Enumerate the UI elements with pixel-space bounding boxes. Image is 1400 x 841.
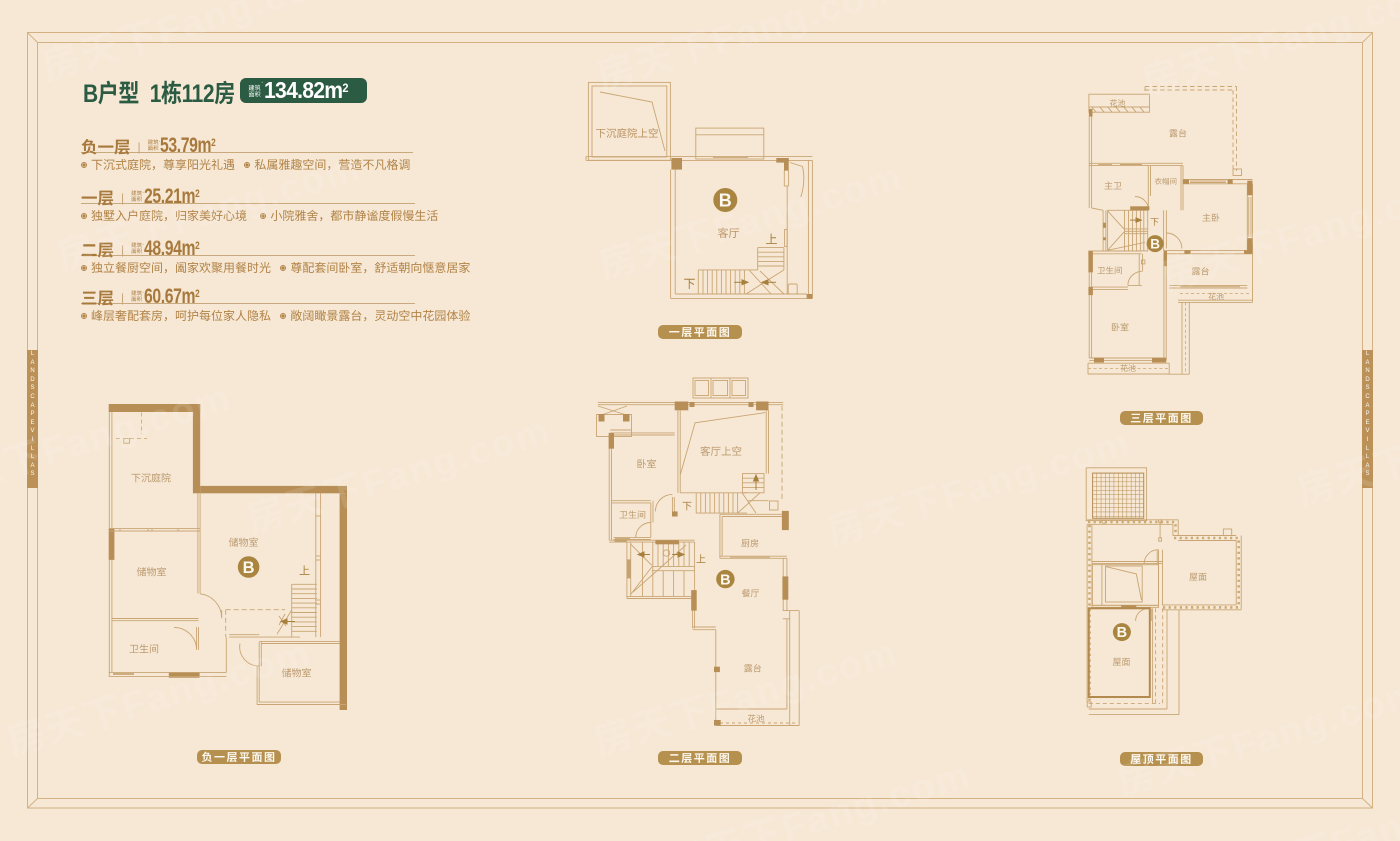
svg-text:上: 上: [696, 551, 706, 566]
svg-text:客厅上空: 客厅上空: [700, 444, 742, 459]
svg-text:厨房: 厨房: [741, 537, 759, 550]
svg-text:下沉庭院: 下沉庭院: [131, 470, 171, 485]
svg-text:衣帽间: 衣帽间: [1155, 176, 1178, 187]
svg-text:卫生间: 卫生间: [619, 508, 646, 521]
svg-text:卧室: 卧室: [1111, 321, 1129, 334]
svg-text:B: B: [243, 554, 255, 578]
svg-text:屋面: 屋面: [1189, 570, 1207, 583]
svg-text:卫生间: 卫生间: [1097, 265, 1123, 277]
svg-text:花池: 花池: [1110, 98, 1126, 109]
svg-text:卧室: 卧室: [637, 456, 657, 471]
svg-text:露台: 露台: [1169, 127, 1187, 140]
svg-text:花池: 花池: [1208, 292, 1224, 303]
svg-text:下: 下: [684, 275, 696, 292]
svg-text:下: 下: [1150, 215, 1159, 228]
svg-text:卫生间: 卫生间: [129, 641, 159, 656]
svg-text:储物室: 储物室: [137, 564, 167, 579]
svg-text:花池: 花池: [1120, 363, 1136, 374]
svg-text:B: B: [720, 568, 730, 589]
svg-text:下沉庭院上空: 下沉庭院上空: [596, 126, 659, 141]
svg-text:餐厅: 餐厅: [742, 587, 760, 600]
svg-text:屋面: 屋面: [1113, 655, 1131, 668]
svg-text:主卧: 主卧: [1202, 211, 1220, 224]
svg-text:主卫: 主卫: [1104, 179, 1122, 192]
svg-text:B: B: [1117, 621, 1127, 642]
svg-text:上: 上: [299, 563, 310, 579]
svg-text:下: 下: [682, 498, 692, 513]
